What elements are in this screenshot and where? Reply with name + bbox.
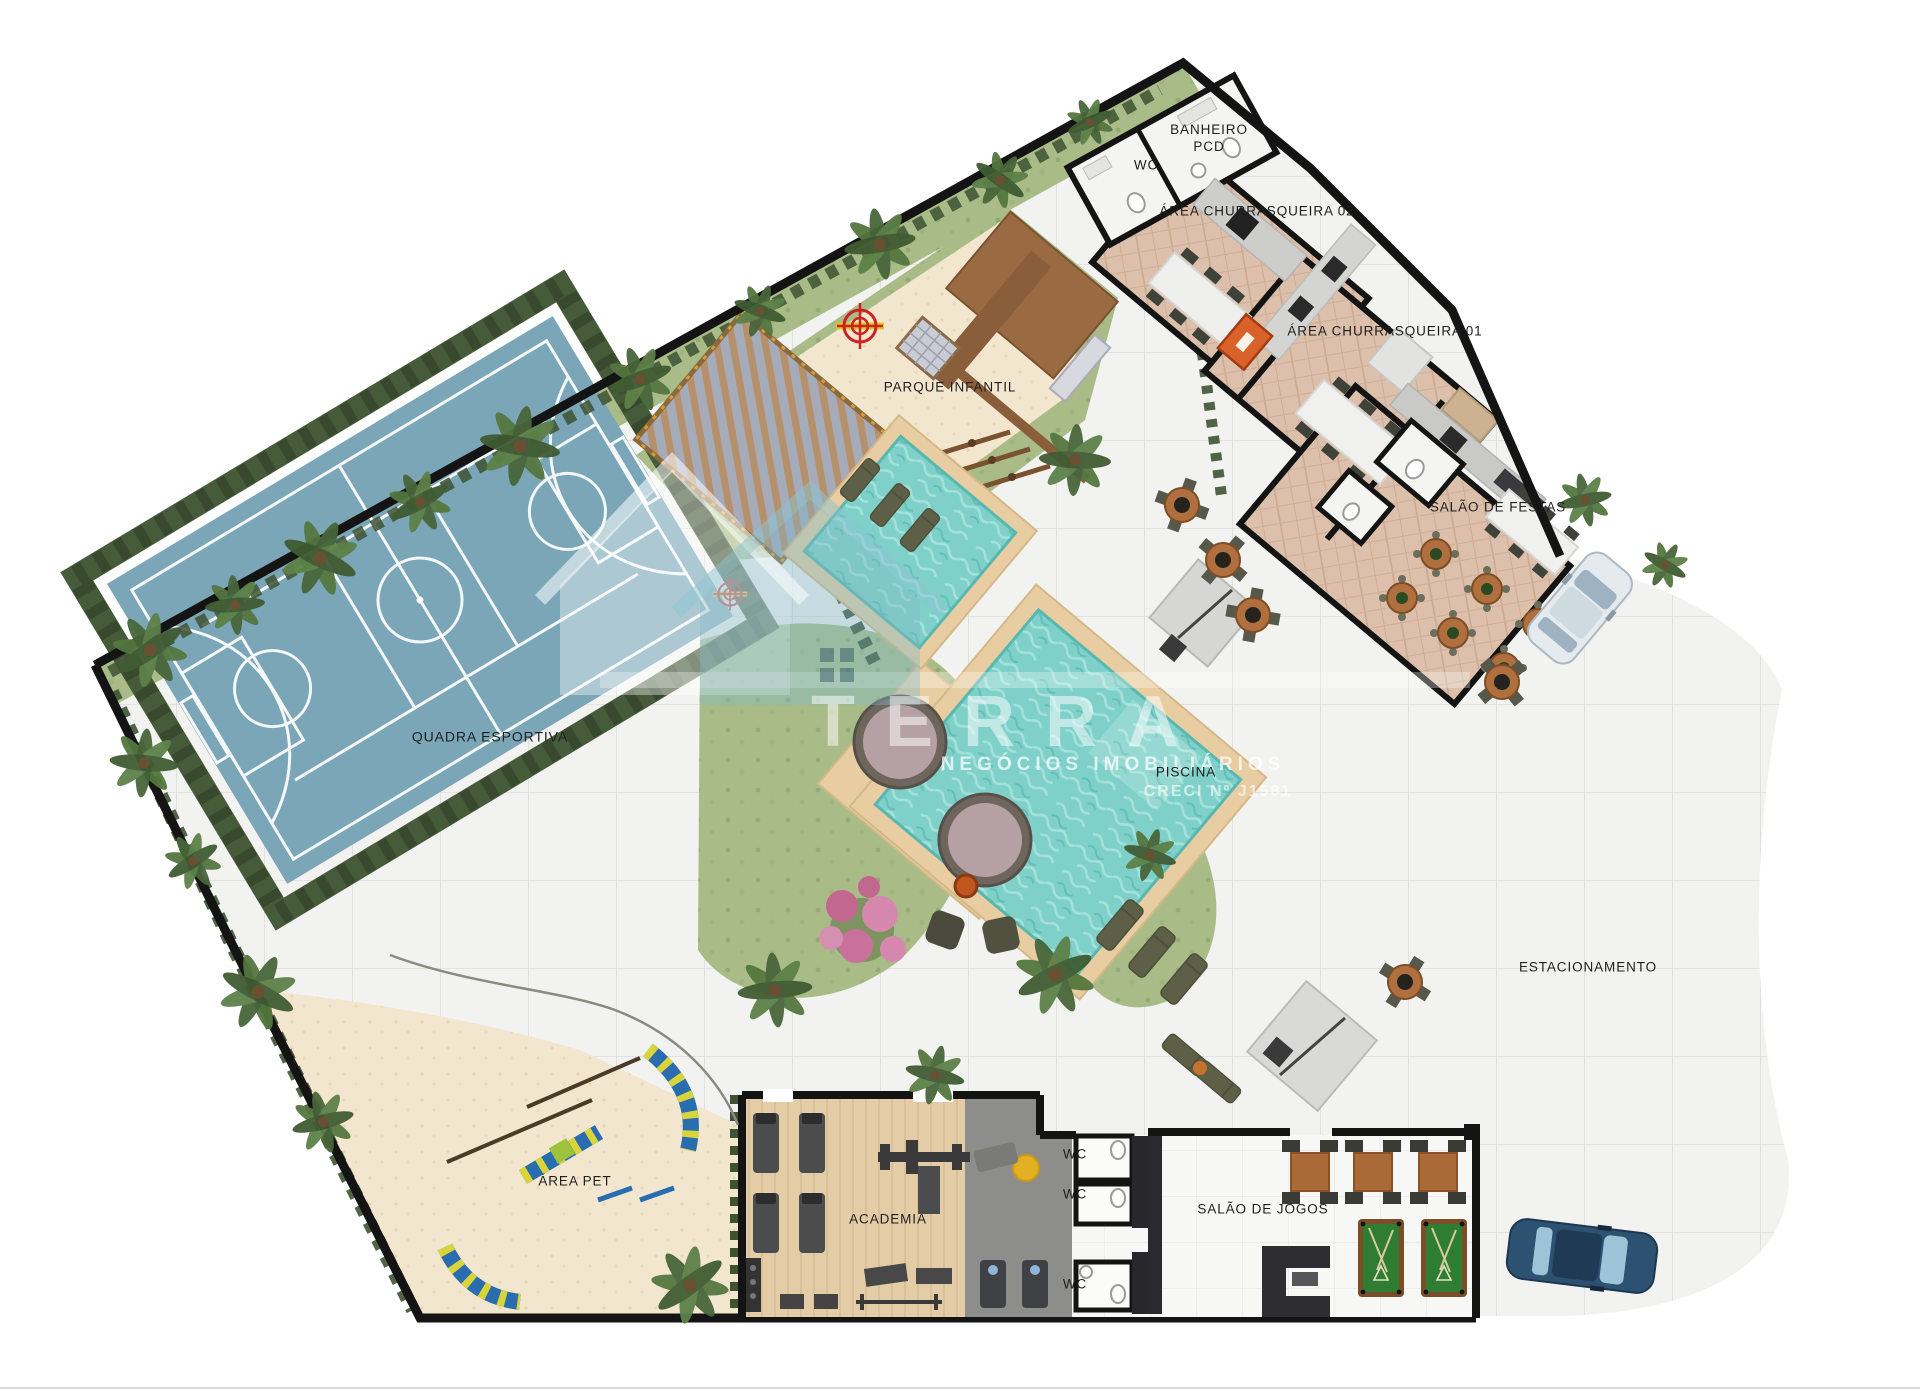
label-churrasqueira-02: ÁREA CHURRASQUEIRA 02 [1159,204,1354,221]
label-area-pet: ÁREA PET [538,1174,611,1191]
label-quadra-esportiva: QUADRA ESPORTIVA [412,728,568,746]
label-parque-infantil: PARQUE INFANTIL [884,380,1017,397]
treadmill-icon [753,1113,779,1173]
toilet-icon [1111,1189,1125,1207]
gym-bench-icon [916,1268,952,1284]
bench-icon [814,1294,838,1309]
label-wc-1: WC [1063,1147,1087,1164]
label-salao-de-jogos: SALÃO DE JOGOS [1197,1202,1328,1219]
label-wc-top: WC [1134,158,1158,175]
site-plan-graphic [0,0,1920,1391]
label-academia: ACADEMIA [849,1212,927,1229]
treadmill-icon [799,1113,825,1173]
label-salao-de-festas: SALÃO DE FESTAS [1430,500,1566,517]
side-table-icon [1193,1061,1207,1075]
bench-icon [780,1294,804,1309]
treadmill-icon [753,1193,779,1253]
wc-block [1076,1136,1162,1314]
label-piscina: PISCINA [1156,765,1216,782]
toilet-icon [1111,1285,1125,1303]
toilet-icon [1111,1141,1125,1159]
label-wc-2: WC [1063,1187,1087,1204]
label-churrasqueira-01: ÁREA CHURRASQUEIRA 01 [1287,324,1482,341]
fire-bowl-icon [955,875,977,897]
site-plan: WC BANHEIRO PCD ÁREA CHURRASQUEIRA 02 ÁR… [0,0,1920,1391]
billiard-table-icon [1358,1219,1404,1297]
pouf [981,915,1021,955]
treadmill-icon [799,1193,825,1253]
label-banheiro-pcd: BANHEIRO PCD [1159,122,1259,156]
marble-wall [1148,1136,1162,1314]
label-wc-3: WC [1063,1277,1087,1294]
billiard-table-icon [1421,1219,1467,1297]
label-estacionamento: ESTACIONAMENTO [1519,960,1657,977]
